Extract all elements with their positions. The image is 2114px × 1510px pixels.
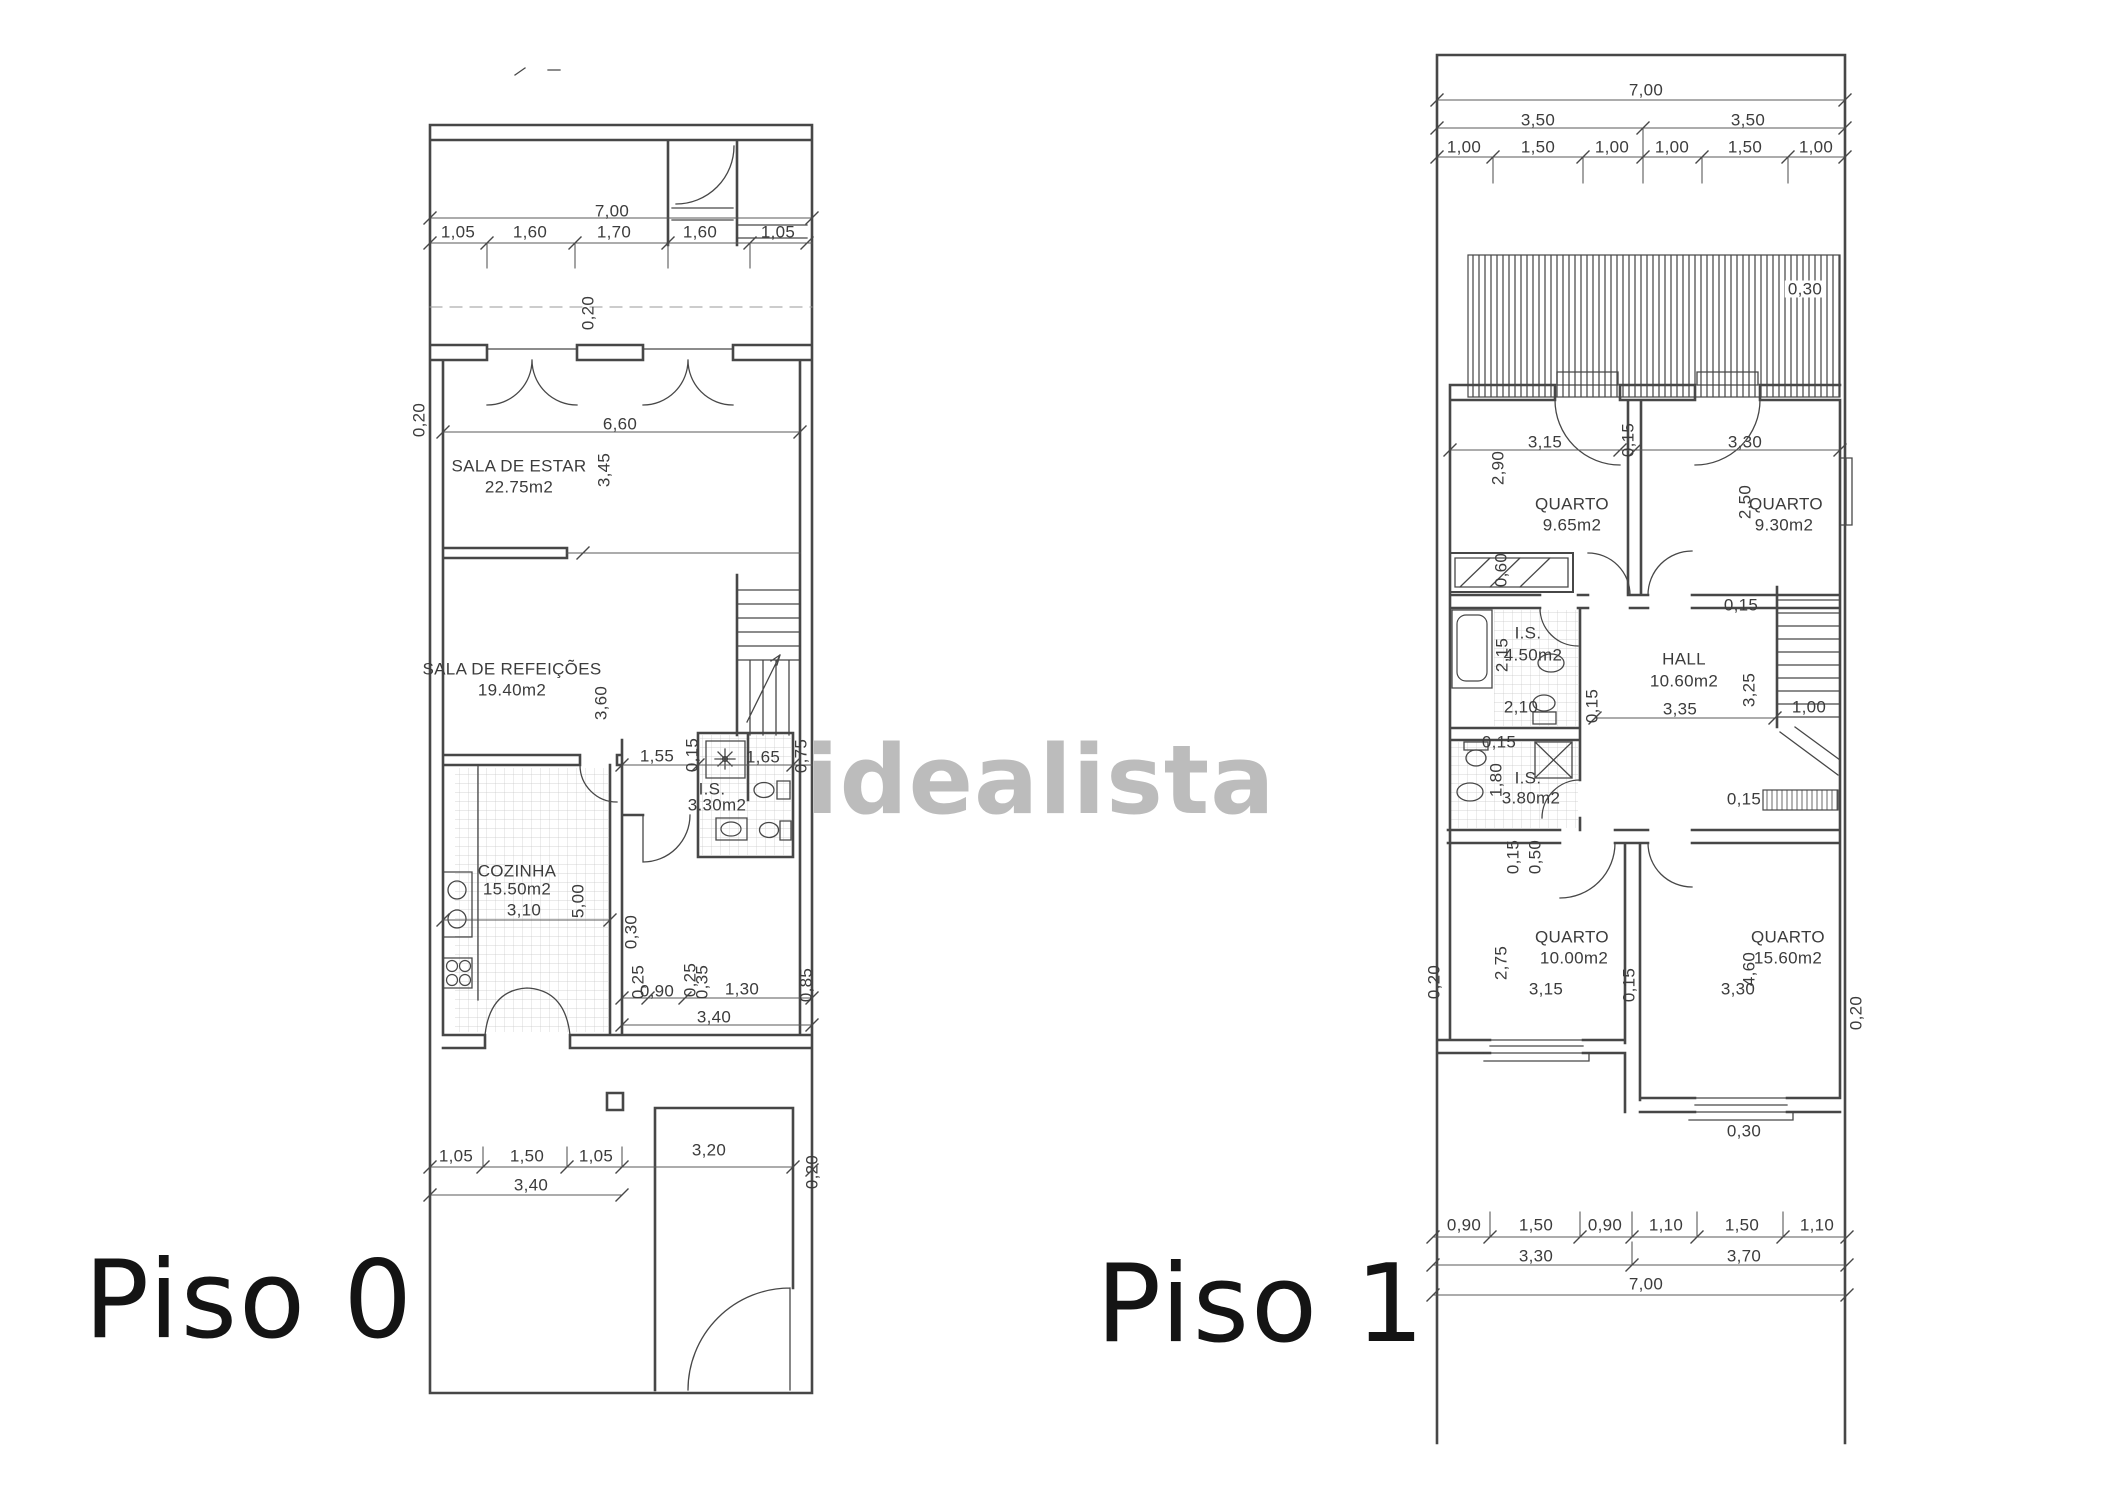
dim-label: 2,10 xyxy=(1504,699,1538,716)
room-label: QUARTO xyxy=(1535,496,1609,513)
dim-label: 0,20 xyxy=(580,296,597,330)
dim-label: 1,70 xyxy=(597,224,631,241)
piso0-plan xyxy=(424,68,818,1393)
piso1-title: Piso 1 xyxy=(1096,1242,1426,1367)
dim-label: 0,15 xyxy=(1505,840,1522,874)
room-label: SALA DE REFEIÇÕES xyxy=(423,661,602,678)
room-label: HALL xyxy=(1662,651,1706,668)
dim-label: 1,50 xyxy=(510,1148,544,1165)
room-label: QUARTO xyxy=(1751,929,1825,946)
dim-label: 3,15 xyxy=(1528,434,1562,451)
room-area: 15.60m2 xyxy=(1754,950,1822,967)
dim-label: 3,40 xyxy=(697,1009,731,1026)
room-area: 3.30m2 xyxy=(688,797,747,814)
room-area: 9.30m2 xyxy=(1755,517,1814,534)
room-label: I.S. xyxy=(1515,770,1542,787)
dim-label: 1,60 xyxy=(683,224,717,241)
room-label: QUARTO xyxy=(1535,929,1609,946)
dim-label: 1,00 xyxy=(1447,139,1481,156)
dim-label: 6,60 xyxy=(603,416,637,433)
room-area: 10.60m2 xyxy=(1650,673,1718,690)
dim-label: 0,15 xyxy=(1584,689,1601,723)
dim-label: 1,05 xyxy=(579,1148,613,1165)
piso0-title: Piso 0 xyxy=(84,1238,414,1363)
dim-label: 3,30 xyxy=(1728,434,1762,451)
dim-label: 1,00 xyxy=(1799,139,1833,156)
dim-label: 1,50 xyxy=(1725,1217,1759,1234)
dim-label: 0,35 xyxy=(694,965,711,999)
dim-label: 1,10 xyxy=(1649,1217,1683,1234)
dim-label: 3,60 xyxy=(593,686,610,720)
dim-label: 0,15 xyxy=(684,738,701,772)
dim-label: 1,50 xyxy=(1521,139,1555,156)
dim-label: 1,30 xyxy=(725,981,759,998)
dim-label: 0,50 xyxy=(1527,840,1544,874)
dim-label: 1,00 xyxy=(1595,139,1629,156)
dim-label: 3,10 xyxy=(507,902,541,919)
dim-label: 3,40 xyxy=(514,1177,548,1194)
dim-label: 1,50 xyxy=(1519,1217,1553,1234)
dim-label: 0,15 xyxy=(1727,791,1761,808)
dim-label: 3,15 xyxy=(1529,981,1563,998)
dim-label: 2,90 xyxy=(1490,451,1507,485)
dim-label: 0,20 xyxy=(804,1155,821,1189)
dim-label: 1,05 xyxy=(439,1148,473,1165)
dim-label: 0,20 xyxy=(1848,996,1865,1030)
room-area: 9.65m2 xyxy=(1543,517,1602,534)
dim-label: 3,35 xyxy=(1663,701,1697,718)
dim-label: 0,85 xyxy=(798,968,815,1002)
closet xyxy=(1763,790,1838,810)
dim-label: 0,15 xyxy=(1621,968,1638,1002)
room-area: 4.50m2 xyxy=(1504,647,1563,664)
dim-label: 0,15 xyxy=(1482,734,1516,751)
room-label: I.S. xyxy=(1515,625,1542,642)
dim-label: 3,70 xyxy=(1727,1248,1761,1265)
dim-label: 0,90 xyxy=(1588,1217,1622,1234)
dim-label: 0,90 xyxy=(1447,1217,1481,1234)
dim-label: 0,30 xyxy=(623,915,640,949)
idealista-watermark: idealista xyxy=(806,726,1275,836)
room-label: SALA DE ESTAR xyxy=(452,458,587,475)
room-label: QUARTO xyxy=(1749,496,1823,513)
dim-label: 1,60 xyxy=(513,224,547,241)
dim-label: 1,10 xyxy=(1800,1217,1834,1234)
dim-label: 3,25 xyxy=(1741,673,1758,707)
room-area: 10.00m2 xyxy=(1540,950,1608,967)
room-area: 19.40m2 xyxy=(478,682,546,699)
dim-label: 1,05 xyxy=(761,224,795,241)
dim-label: 7,00 xyxy=(1629,82,1663,99)
room-area: 15.50m2 xyxy=(483,881,551,898)
dim-label: 0,90 xyxy=(640,983,674,1000)
wardrobe xyxy=(1450,553,1573,592)
floor-plan-canvas: idealista Piso 0 Piso 1 7,001,051,601,70… xyxy=(0,0,2114,1510)
dim-label: 3,50 xyxy=(1731,112,1765,129)
dim-label: 1,05 xyxy=(441,224,475,241)
dim-label: 0,15 xyxy=(1724,597,1758,614)
dim-label: 0,60 xyxy=(1493,553,1510,587)
bathtub xyxy=(1457,615,1487,681)
dim-label: 1,00 xyxy=(1655,139,1689,156)
dim-label: 3,30 xyxy=(1519,1248,1553,1265)
room-area: 3.80m2 xyxy=(1502,790,1561,807)
dim-label: 0,30 xyxy=(1727,1123,1761,1140)
dim-label: 3,45 xyxy=(596,453,613,487)
dim-label: 1,00 xyxy=(1792,699,1826,716)
dim-label: 0,30 xyxy=(1785,281,1825,298)
dim-label: 1,55 xyxy=(640,748,674,765)
dim-label: 5,00 xyxy=(570,884,587,918)
room-label: COZINHA xyxy=(478,863,557,880)
dim-label: 3,50 xyxy=(1521,112,1555,129)
dim-label: 3,20 xyxy=(692,1142,726,1159)
dim-label: 2,75 xyxy=(1493,946,1510,980)
dim-label: 1,50 xyxy=(1728,139,1762,156)
dim-label: 3,30 xyxy=(1721,981,1755,998)
dim-label: 7,00 xyxy=(595,203,629,220)
terrace-pergola xyxy=(1468,255,1840,397)
dim-label: 0,20 xyxy=(411,403,428,437)
dim-label: 1,65 xyxy=(746,749,780,766)
dim-label: 0,15 xyxy=(1620,423,1637,457)
dim-label: 0,20 xyxy=(1426,965,1443,999)
dim-label: 7,00 xyxy=(1629,1276,1663,1293)
room-area: 22.75m2 xyxy=(485,479,553,496)
